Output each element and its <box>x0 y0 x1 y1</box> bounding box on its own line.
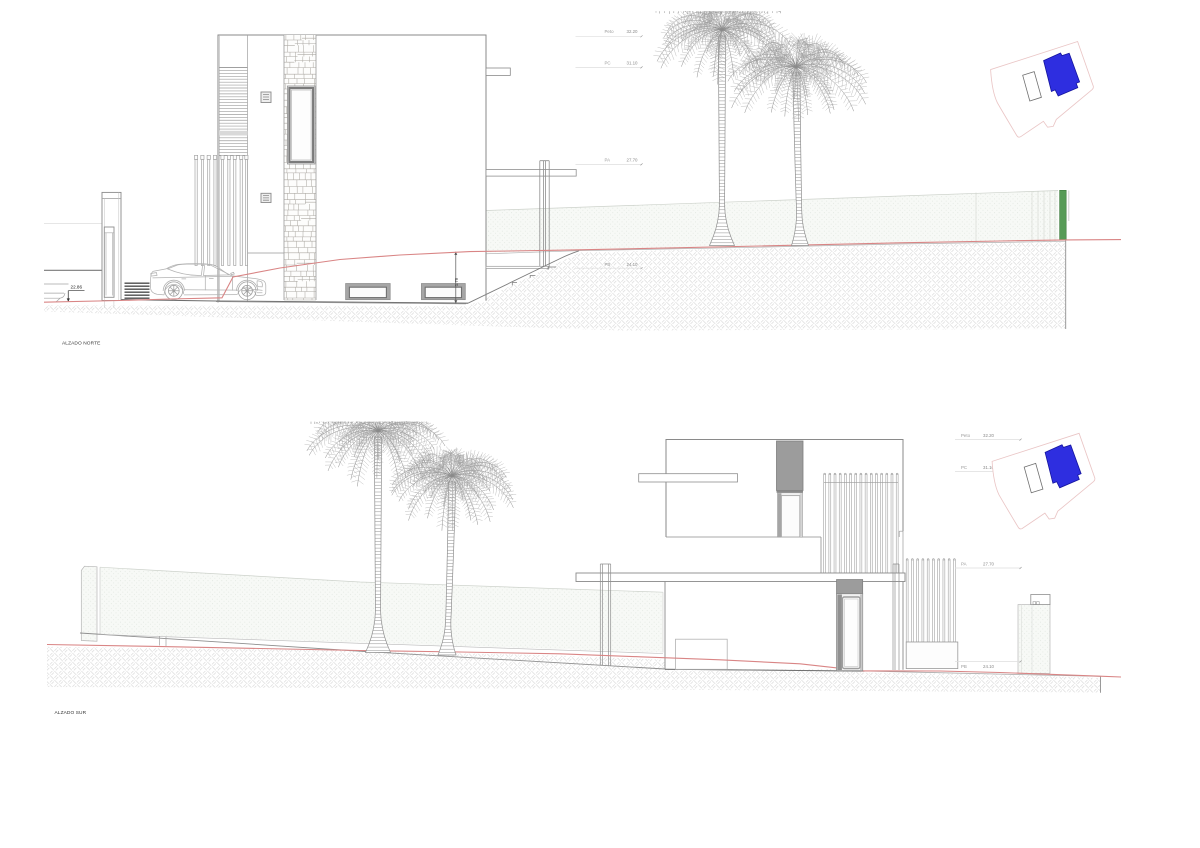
svg-text:ALZADO NORTE: ALZADO NORTE <box>62 340 100 346</box>
svg-text:32.20: 32.20 <box>983 433 995 438</box>
svg-text:PA: PA <box>961 562 967 567</box>
svg-text:22.86: 22.86 <box>71 285 83 290</box>
svg-text:24.10: 24.10 <box>627 262 639 267</box>
svg-text:PB: PB <box>605 262 611 267</box>
svg-text:27.70: 27.70 <box>983 562 995 567</box>
svg-text:27.70: 27.70 <box>627 158 639 163</box>
svg-text:1.79: 1.79 <box>454 277 459 286</box>
svg-text:PC: PC <box>605 60 611 65</box>
svg-text:32.20: 32.20 <box>627 29 639 34</box>
svg-text:PC: PC <box>961 465 967 470</box>
svg-text:Peto: Peto <box>961 433 971 438</box>
svg-text:PA: PA <box>605 158 611 163</box>
svg-text:31.10: 31.10 <box>627 60 639 65</box>
svg-text:24.10: 24.10 <box>983 664 995 669</box>
svg-text:Peto: Peto <box>605 29 615 34</box>
svg-text:PB: PB <box>961 664 967 669</box>
svg-text:ALZADO SUR: ALZADO SUR <box>55 710 87 716</box>
